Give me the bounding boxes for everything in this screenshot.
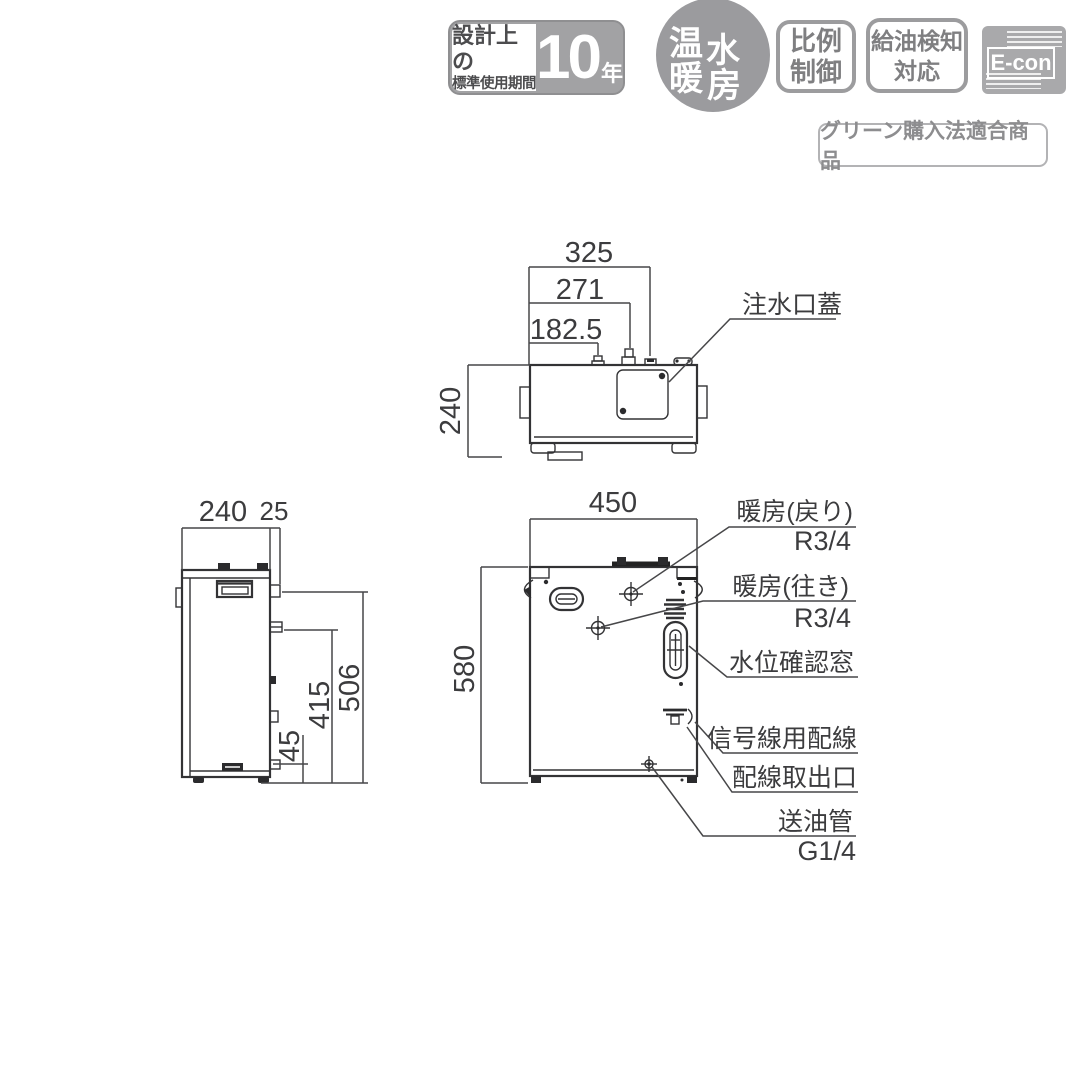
front-screw-dot <box>679 682 683 686</box>
side-right-foot <box>258 777 269 783</box>
dim-240-side: 240 <box>199 496 247 528</box>
dim-415: 415 <box>304 681 336 729</box>
cover-screw-2 <box>620 408 626 414</box>
oil-pipe-size: G1/4 <box>797 836 856 866</box>
top-view-right-tab <box>697 386 707 418</box>
side-left-foot <box>193 777 204 783</box>
dim-25: 25 <box>260 496 289 526</box>
front-view-body <box>530 567 697 776</box>
dim-271: 271 <box>556 274 604 306</box>
front-right-bracket <box>677 567 702 598</box>
signal-wiring-label: 信号線用配線 <box>707 725 857 753</box>
front-top-clip-1 <box>617 557 626 565</box>
dim-240-top: 240 <box>435 387 467 435</box>
signal-wiring-callout: 信号線用配線 <box>695 722 858 753</box>
dim-450: 450 <box>589 487 637 519</box>
cover-screw-1 <box>659 373 665 379</box>
dim-580: 580 <box>449 645 481 693</box>
side-view: 240 25 506 415 45 <box>176 496 368 783</box>
side-fitting-415 <box>270 622 282 632</box>
water-inlet-cover-label: 注水口蓋 <box>742 291 842 319</box>
water-level-window-label: 水位確認窓 <box>729 649 854 677</box>
side-handle-box <box>217 581 252 597</box>
top-view-left-tab <box>520 387 530 418</box>
dim-325: 325 <box>565 237 613 269</box>
nozzle-182 <box>592 356 604 365</box>
front-top-clip-2 <box>658 557 668 565</box>
front-rib-vent <box>664 600 686 618</box>
side-cap-clamp-1 <box>218 563 230 570</box>
heating-supply-label: 暖房(往き) <box>732 573 849 601</box>
nozzle-271 <box>622 349 635 365</box>
dim-182-5: 182.5 <box>530 314 603 346</box>
side-tab-mid <box>270 676 276 684</box>
front-foot-dot <box>681 779 684 782</box>
front-oval-vent <box>550 588 583 610</box>
top-view-body <box>530 365 697 443</box>
front-left-bracket <box>524 567 549 598</box>
heating-return-port-marker <box>619 582 643 606</box>
water-level-window <box>664 622 687 678</box>
side-logo-plate <box>222 763 243 771</box>
top-view-dimensions: 325 271 182.5 240 <box>435 237 650 457</box>
top-view-right-foot <box>672 443 696 453</box>
wiring-outlet-label: 配線取出口 <box>732 764 857 792</box>
front-right-foot <box>687 776 697 783</box>
front-callouts: 暖房(戻り) R3/4 暖房(往き) R3/4 水位確認窓 信号線用配線 <box>601 498 858 866</box>
side-cap-clamp-2 <box>257 563 268 570</box>
top-view: 325 271 182.5 240 注水口蓋 <box>435 237 842 460</box>
side-fitting-outlet <box>270 711 278 722</box>
side-view-dimensions: 240 25 506 415 45 <box>182 496 368 783</box>
side-fitting-top <box>270 585 280 597</box>
front-left-foot <box>531 776 541 783</box>
heating-supply-size: R3/4 <box>794 603 851 633</box>
water-inlet-callout: 注水口蓋 <box>669 291 842 382</box>
side-view-body <box>182 570 270 777</box>
heating-return-label: 暖房(戻り) <box>736 498 853 526</box>
front-view: 450 580 暖房(戻り) R3/4 暖房(往き) R3/4 <box>449 487 858 866</box>
heating-return-size: R3/4 <box>794 526 851 556</box>
page: 設計上の 標準使用期間 10 年 温 水 暖 房 比例 制御 給油検知 対応 E… <box>0 0 1080 1080</box>
heating-supply-callout: 暖房(往き) R3/4 <box>601 573 856 633</box>
water-level-window-callout: 水位確認窓 <box>689 646 858 677</box>
front-view-dimensions: 450 580 <box>449 487 697 783</box>
heating-supply-port-marker <box>586 616 610 640</box>
oil-pipe-label: 送油管 <box>778 808 853 836</box>
signal-connector <box>663 709 692 724</box>
dim-506: 506 <box>334 664 366 712</box>
dimension-drawing: 325 271 182.5 240 注水口蓋 <box>0 0 1080 1080</box>
dim-45: 45 <box>274 730 306 762</box>
